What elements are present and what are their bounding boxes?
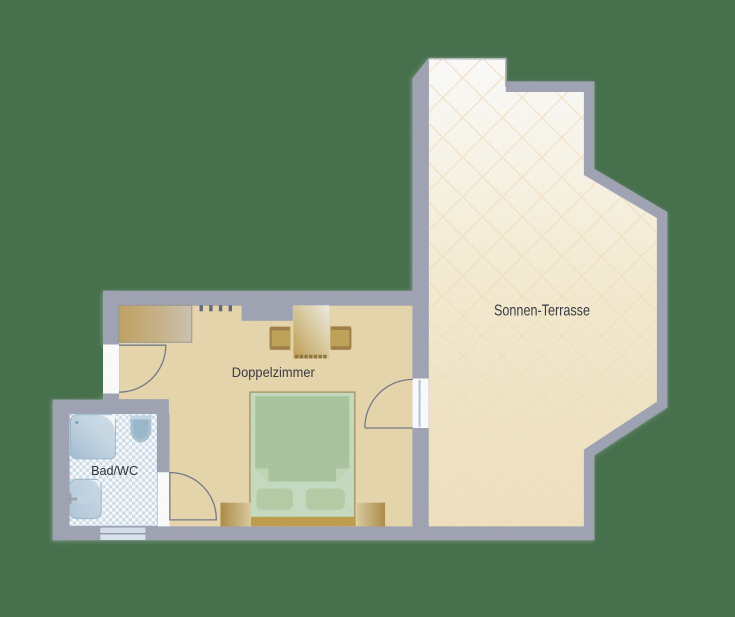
svg-text:Bad/WC: Bad/WC (91, 463, 138, 478)
svg-text:Sonnen-Terrasse: Sonnen-Terrasse (494, 303, 590, 320)
svg-text:Doppelzimmer: Doppelzimmer (232, 365, 315, 380)
